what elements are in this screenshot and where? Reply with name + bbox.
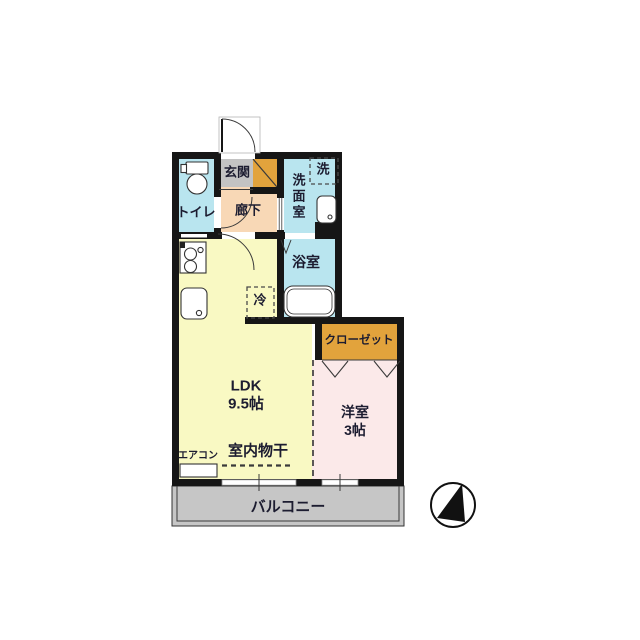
indoor-drying-label: 室内物干 — [228, 442, 288, 459]
ldk-label: LDK — [231, 377, 262, 394]
toilet-wall-inset — [181, 234, 207, 238]
bathroom-label: 浴室 — [292, 254, 320, 270]
genkan-label: 玄関 — [224, 166, 250, 181]
hallway-label: 廊下 — [235, 204, 261, 219]
refrigerator-label: 冷 — [253, 294, 266, 309]
washer-space-label: 洗 — [316, 163, 329, 178]
floorplan-drawing — [0, 0, 640, 640]
vanity-sink-icon — [317, 196, 336, 223]
washroom-sliding-door — [277, 198, 284, 230]
kitchen-sink-icon — [181, 288, 207, 319]
western-room-size-label: 3帖 — [344, 422, 366, 438]
compass-north-icon — [431, 483, 475, 527]
aircon-unit — [180, 464, 217, 477]
floorplan-page: 玄関 トイレ 廊下 洗面室 洗 浴室 冷 LDK 9.5帖 クローゼット 洋室 … — [0, 0, 640, 640]
balcony-label: バルコニー — [251, 498, 326, 515]
western-room-label: 洋室 — [341, 404, 369, 420]
closet-label: クローゼット — [325, 334, 394, 347]
ldk-size-label: 9.5帖 — [228, 395, 264, 412]
toilet-label: トイレ — [176, 206, 215, 221]
washroom-label: 洗面室 — [290, 173, 305, 221]
bathtub-icon — [284, 286, 335, 317]
stove-icon — [180, 242, 206, 273]
aircon-label: エアコン — [178, 450, 218, 462]
entry-door-swing-box — [219, 117, 260, 153]
